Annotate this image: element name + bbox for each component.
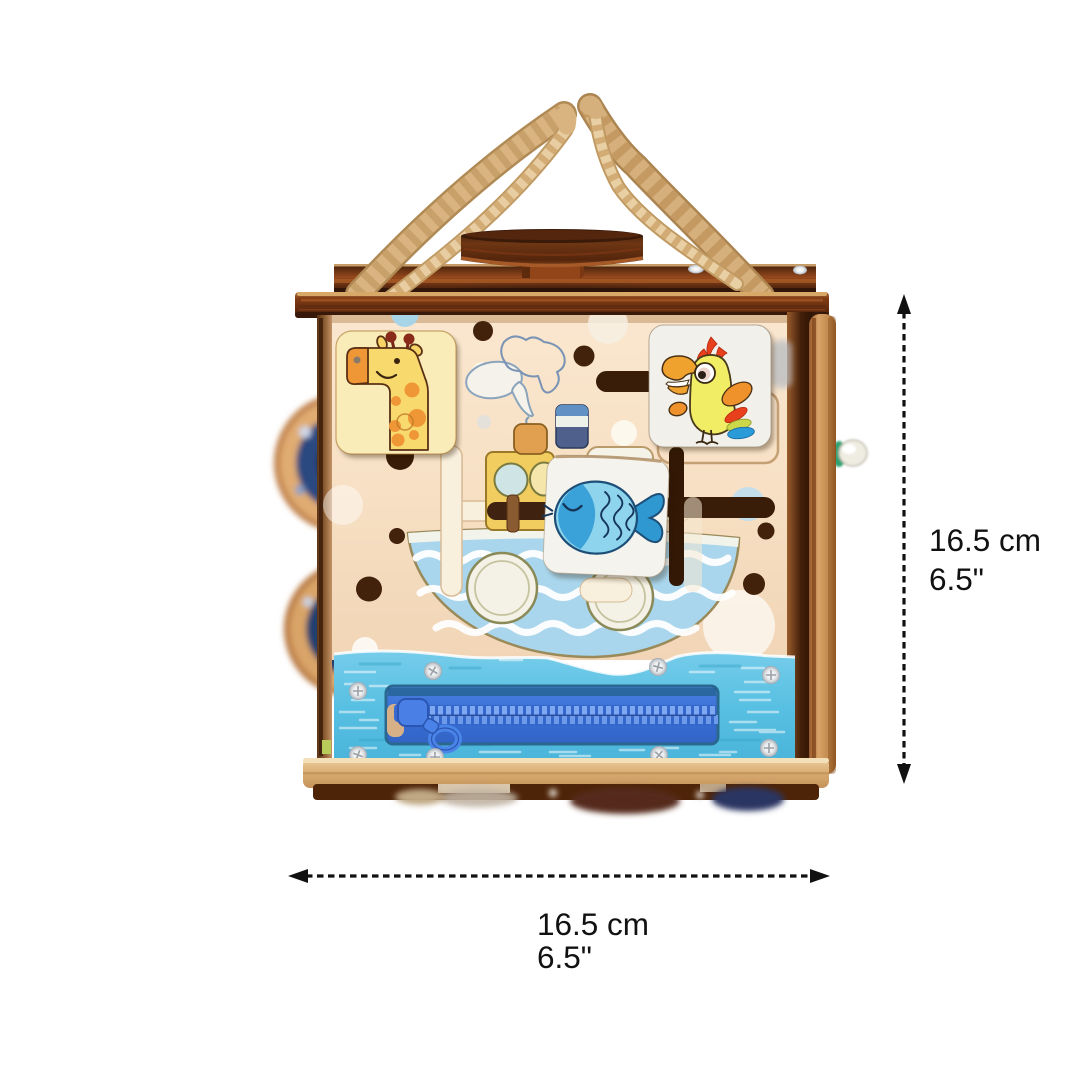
svg-text:6.5": 6.5" [537, 939, 592, 975]
svg-text:16.5 cm: 16.5 cm [537, 906, 649, 942]
svg-text:6.5": 6.5" [929, 561, 984, 597]
svg-text:16.5 cm: 16.5 cm [929, 522, 1041, 558]
